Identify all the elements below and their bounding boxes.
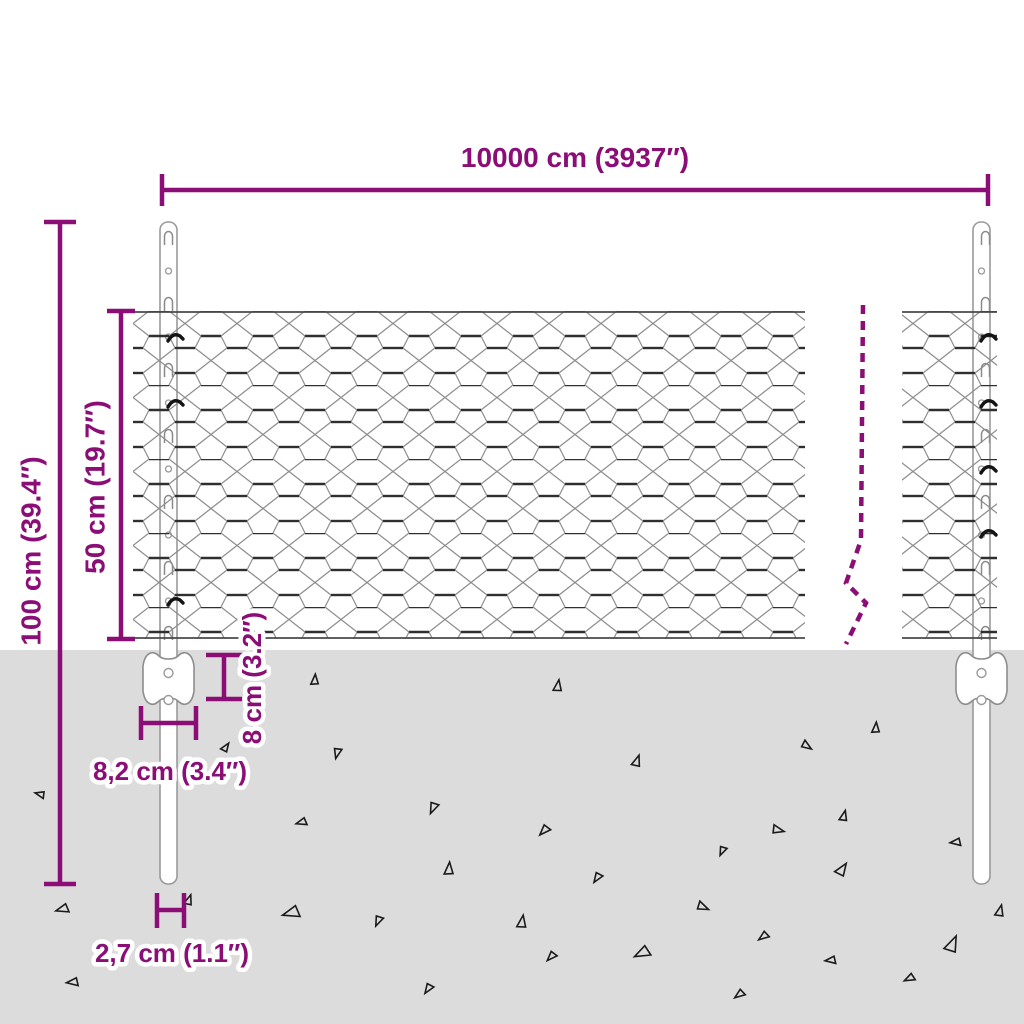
dim-bracket-depth-label: 8 cm (3.2″) <box>237 612 267 744</box>
dim-post-width-label: 2,7 cm (1.1″) <box>95 938 249 968</box>
left-post-bracket <box>143 653 194 705</box>
mesh-panel-main <box>133 311 805 639</box>
fence-dimension-diagram: 10000 cm (3937″) 100 cm (39.4″) 50 cm (1… <box>0 0 1024 1024</box>
dim-mesh-height-label: 50 cm (19.7″) <box>79 400 110 574</box>
right-post-bracket <box>956 653 1007 705</box>
dim-bracket-width-label: 8,2 cm (3.4″) <box>93 756 247 786</box>
dim-total-width-label: 10000 cm (3937″) <box>461 142 689 173</box>
dim-post-height-label: 100 cm (39.4″) <box>15 456 46 645</box>
mesh-panel-right <box>902 311 997 639</box>
